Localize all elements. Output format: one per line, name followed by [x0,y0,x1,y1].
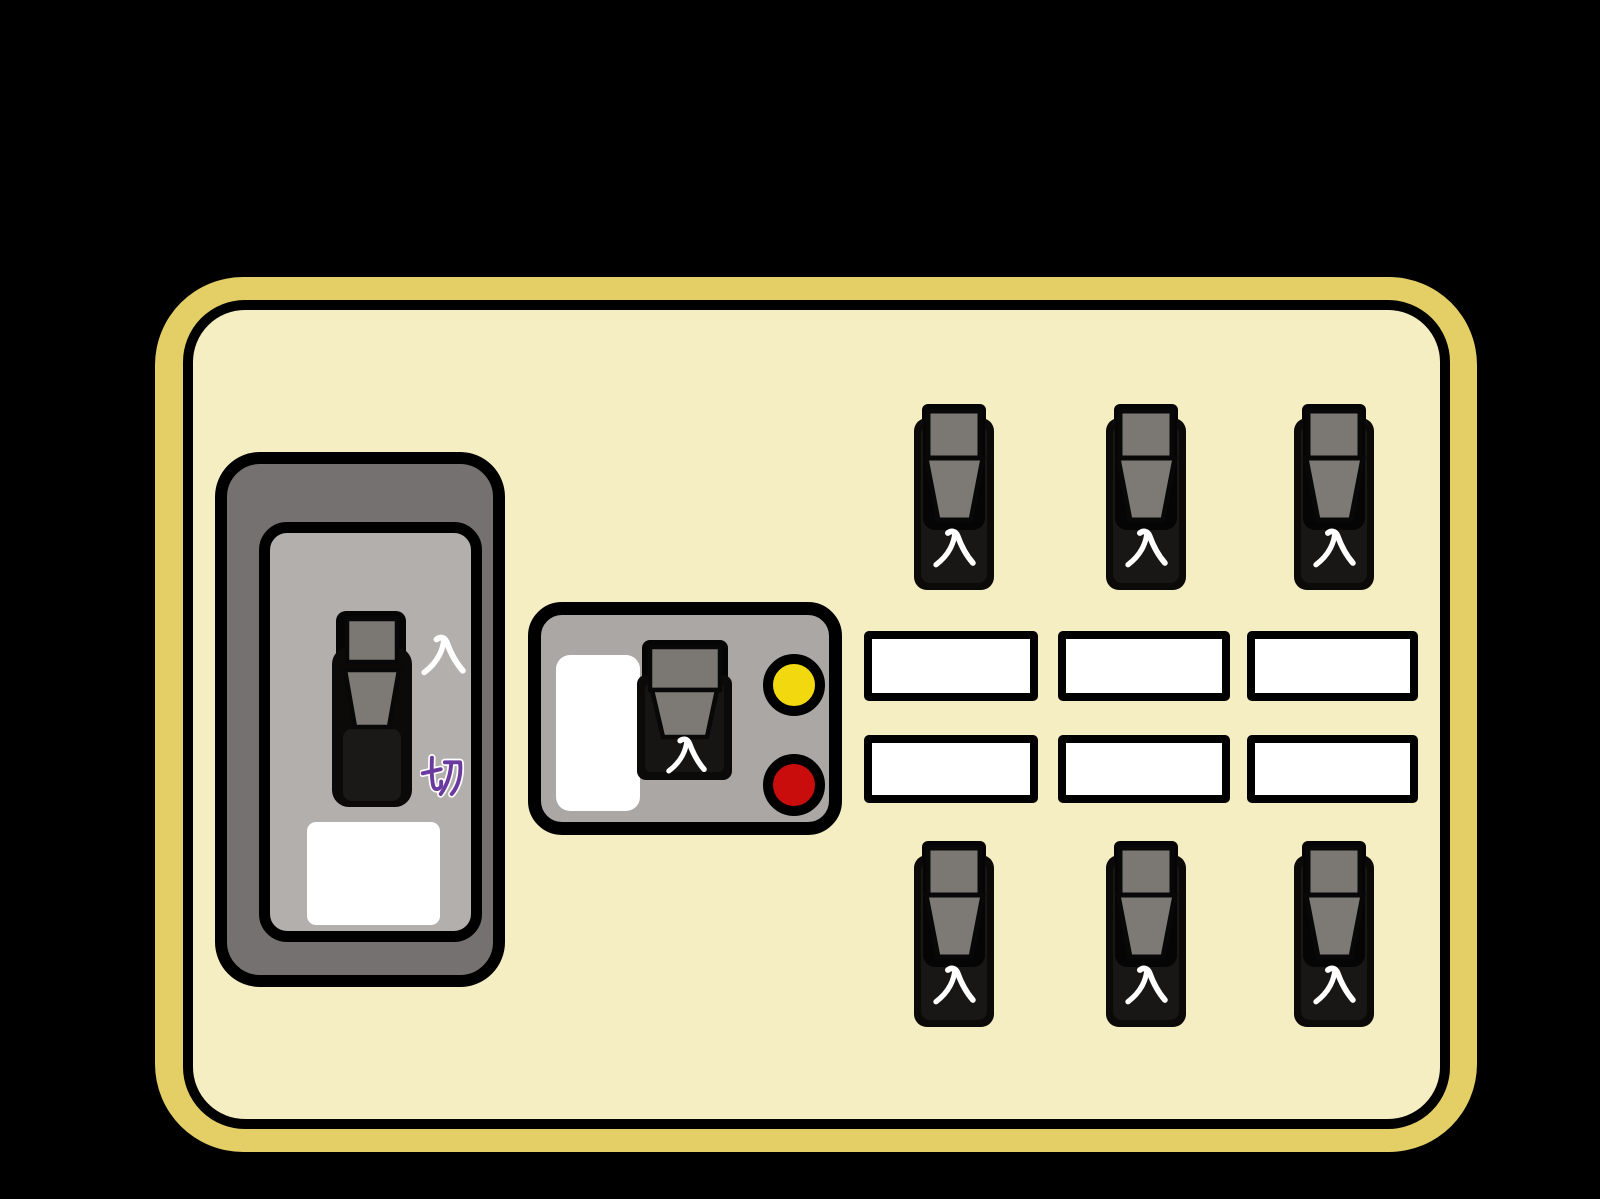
branch-breaker-top-2[interactable]: 入 [1106,398,1186,590]
distribution-board-frame: 入 入 切 入 入 [155,277,1477,1152]
circuit-label-plate-4 [864,735,1038,803]
main-off-label-setsu-glyph: 切 [420,754,466,800]
main-breaker-switch-handle [332,611,412,811]
leakage-breaker-switch[interactable]: 入 [637,640,732,780]
circuit-label-plate-6 [1247,735,1418,803]
main-breaker-label-plate [307,822,440,925]
circuit-label-plate-3 [1247,631,1418,701]
main-breaker: 入 入 切 [215,452,505,987]
branch-breaker-bottom-2[interactable]: 入 [1106,835,1186,1027]
circuit-label-plate-1 [864,631,1038,701]
branch-breaker-top-3[interactable]: 入 [1294,398,1374,590]
main-on-label-iri-glyph: 入 [420,632,466,678]
branch-breaker-bottom-1[interactable]: 入 [914,835,994,1027]
indicator-lamp [763,654,825,716]
circuit-label-plate-2 [1058,631,1230,701]
circuit-label-plate-5 [1058,735,1230,803]
leakage-breaker-label-text [556,655,557,656]
test-button[interactable] [763,754,825,816]
leakage-breaker: 入 [528,602,842,835]
main-breaker-switch[interactable]: 入 [332,611,412,811]
branch-breaker-top-1[interactable]: 入 [914,398,994,590]
screenshot-canvas: 入 入 切 入 入 [0,0,1600,1199]
leakage-breaker-label-plate [556,655,640,811]
leakage-breaker-switch-handle [637,640,732,780]
branch-breaker-bottom-3[interactable]: 入 [1294,835,1374,1027]
